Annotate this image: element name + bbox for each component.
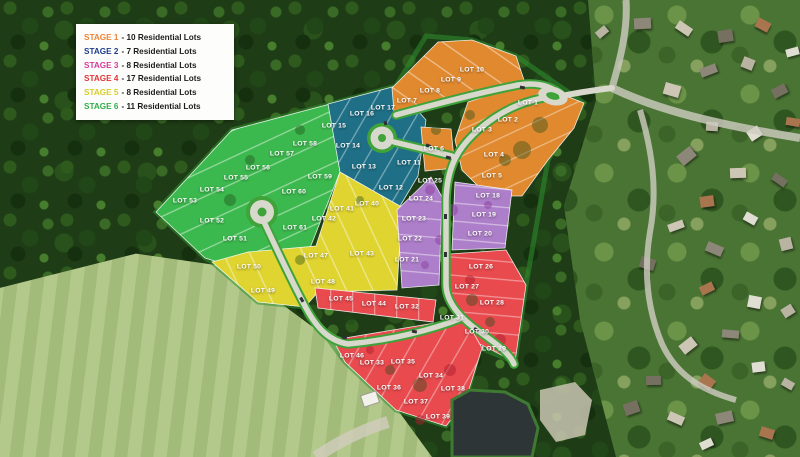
legend-stage-label: STAGE 3 (84, 61, 118, 70)
legend-box: STAGE 1- 10 Residential LotsSTAGE 2- 7 R… (76, 24, 234, 120)
legend-item: STAGE 2- 7 Residential Lots (84, 45, 226, 59)
shed (361, 391, 380, 407)
legend-stage-desc: - 10 Residential Lots (121, 33, 201, 42)
legend-stage-label: STAGE 2 (84, 47, 118, 56)
legend-item: STAGE 1- 10 Residential Lots (84, 31, 226, 45)
suburb-streets (612, 0, 800, 400)
legend-stage-label: STAGE 5 (84, 88, 118, 97)
legend-stage-desc: - 8 Residential Lots (121, 88, 196, 97)
legend-stage-label: STAGE 6 (84, 102, 118, 111)
cleared-pad (540, 382, 592, 442)
legend-stage-label: STAGE 4 (84, 74, 118, 83)
legend-stage-label: STAGE 1 (84, 33, 118, 42)
legend-stage-desc: - 7 Residential Lots (121, 47, 196, 56)
legend-stage-desc: - 8 Residential Lots (121, 61, 196, 70)
legend-item: STAGE 5- 8 Residential Lots (84, 86, 226, 100)
site-map: LOT 1LOT 2LOT 3LOT 4LOT 5LOT 6LOT 7LOT 8… (0, 0, 800, 457)
pond (452, 390, 538, 457)
legend-stage-desc: - 11 Residential Lots (121, 102, 200, 111)
legend-item: STAGE 3- 8 Residential Lots (84, 59, 226, 73)
legend-item: STAGE 6- 11 Residential Lots (84, 100, 226, 114)
legend-stage-desc: - 17 Residential Lots (121, 74, 201, 83)
legend-item: STAGE 4- 17 Residential Lots (84, 72, 226, 86)
farm-track (316, 422, 388, 457)
